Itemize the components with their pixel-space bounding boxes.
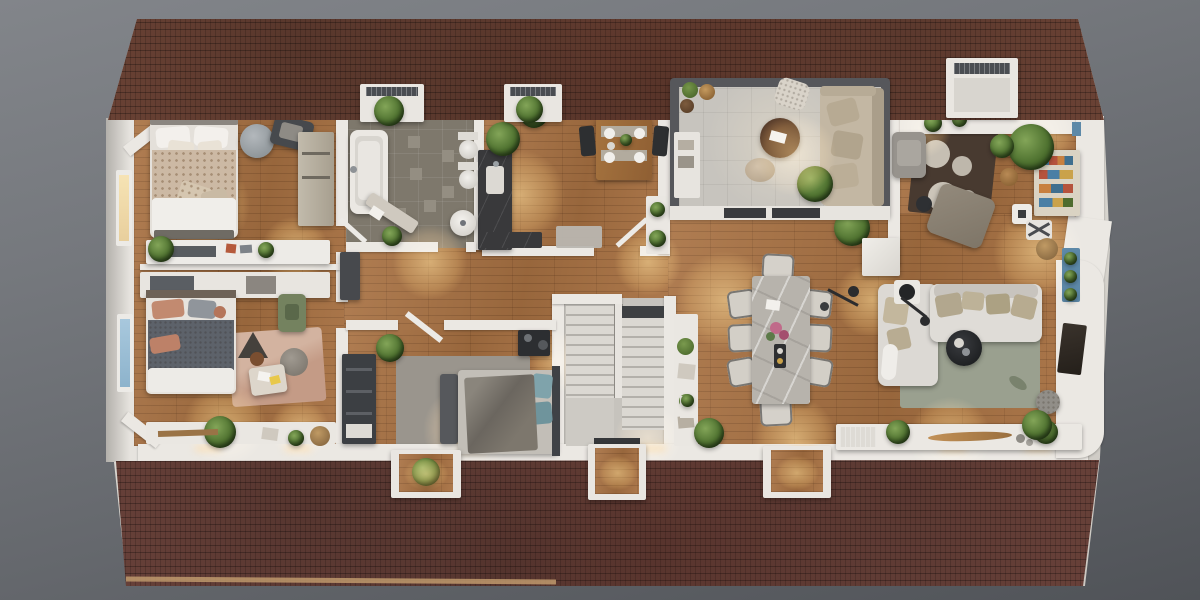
dining-flowers xyxy=(779,330,789,340)
coffee-table-plate xyxy=(962,348,970,356)
master-wardrobe-shelf xyxy=(302,152,330,155)
master-sideboard-plant xyxy=(258,242,274,258)
bathtub-faucet xyxy=(350,166,357,173)
sofa-cushion xyxy=(934,292,963,318)
master-window-glass xyxy=(119,175,129,241)
lounge-wood-stump xyxy=(680,99,694,113)
sideboard-crate xyxy=(840,427,876,447)
master-sideboard-plant xyxy=(148,236,174,262)
bedroom2-wardrobe-bin xyxy=(346,424,372,438)
coffee-table-plate xyxy=(954,338,964,348)
bath-plant xyxy=(382,226,402,246)
kids-duvet xyxy=(148,368,234,392)
kitchen-plant xyxy=(486,122,520,156)
stair-top-edge xyxy=(622,306,664,318)
wall-planter-plant xyxy=(1064,252,1077,265)
kitchen-sink xyxy=(486,166,504,194)
sofa-cushion xyxy=(961,291,985,311)
bedroom2-blanket xyxy=(464,374,538,454)
dining-tray-plate xyxy=(777,348,783,354)
media-books-row xyxy=(1039,184,1073,193)
kids-ledge-frame xyxy=(261,427,279,441)
sill-light xyxy=(285,446,311,451)
bedroom2-speaker xyxy=(538,340,548,350)
lounge-cabinet-frame xyxy=(678,156,694,168)
hall-planter-plant xyxy=(681,394,694,407)
bedroom2-wardrobe-shelf xyxy=(346,412,372,415)
lounge-threshold xyxy=(724,208,766,218)
stair-shelf-frame xyxy=(677,363,695,380)
hall-speaker xyxy=(916,196,932,212)
bath-tile-accent xyxy=(408,136,420,148)
kitchen-faucet xyxy=(493,161,499,167)
stair-flight-left xyxy=(566,306,614,400)
media-books-row xyxy=(1039,198,1073,207)
kitchen-mat xyxy=(556,226,602,248)
wall-stair-top xyxy=(552,294,622,304)
dining-tray-plate xyxy=(777,358,783,364)
lounge-wood-stump xyxy=(699,84,715,100)
hall-cube-table xyxy=(862,238,900,276)
kids-cabinet-inset xyxy=(246,276,276,294)
kitchen-chair xyxy=(579,125,597,156)
rug-media-circle xyxy=(952,156,972,176)
kids-pillow xyxy=(187,299,216,319)
toilet-tank xyxy=(458,132,478,140)
kitchen-plate xyxy=(604,128,615,139)
dormer-north-2-window xyxy=(510,87,556,96)
dormer-north-1-window xyxy=(366,87,418,96)
wall-planter-plant xyxy=(1064,270,1077,283)
sideboard-plant xyxy=(886,420,910,444)
dining-flowers xyxy=(766,332,775,341)
lounge-sofa-arm xyxy=(820,86,876,96)
bedroom2-wardrobe-shelf xyxy=(346,368,372,371)
kids-ledge-basket xyxy=(310,426,330,446)
kitchen-plate xyxy=(604,152,615,163)
master-wardrobe xyxy=(298,132,334,226)
kitchen-plate xyxy=(634,152,645,163)
stair-flight-right xyxy=(622,318,664,430)
bath-tile-accent xyxy=(442,186,454,198)
dining-placecard xyxy=(765,299,780,311)
floorplan-render xyxy=(0,0,1200,600)
media-books-row xyxy=(1039,170,1073,179)
media-plant-small xyxy=(990,134,1014,158)
media-stool-mark xyxy=(1018,210,1026,218)
dormer-north-1-plant xyxy=(374,96,404,126)
floor-lamp-head xyxy=(820,302,829,311)
dormer-north-2-plant xyxy=(516,96,543,123)
stair-shelf-moss xyxy=(677,338,694,355)
wall-master-bath-upper xyxy=(336,114,348,226)
lounge-cabinet-frame xyxy=(678,140,694,150)
dormer-south-2-glow xyxy=(592,450,644,496)
wall-bedroom2-top-a xyxy=(346,320,398,330)
kitchen-chair xyxy=(652,125,670,156)
sofa-cushion xyxy=(985,293,1010,315)
kids-window-glass xyxy=(120,319,130,387)
toilet-bowl xyxy=(459,140,478,159)
dormer-south-3-glow xyxy=(768,450,826,496)
kitchen-shelf-plant xyxy=(649,230,666,247)
media-blue-vase xyxy=(1072,122,1081,136)
bidet-tank xyxy=(458,162,478,170)
kids-bed-headboard xyxy=(146,290,236,298)
dining-table xyxy=(752,276,810,404)
master-duvet xyxy=(152,198,236,234)
bedroom2-wardrobe-shelf xyxy=(346,390,372,393)
sideboard-stone xyxy=(1026,439,1033,446)
master-sideboard-books xyxy=(226,244,237,254)
master-side-table xyxy=(240,124,274,158)
kitchen-table-plant xyxy=(620,134,632,146)
master-wardrobe-shelf xyxy=(302,176,330,179)
master-sideboard-books xyxy=(240,245,253,254)
media-armchair-cushion xyxy=(897,140,921,166)
bedroom2-bench xyxy=(440,374,458,444)
bedroom2-speaker xyxy=(524,334,532,342)
kitchen-plate xyxy=(634,128,645,139)
bedroom2-plant xyxy=(376,334,404,362)
dormer-south-1-glow xyxy=(396,452,456,496)
media-basket xyxy=(1036,238,1058,260)
lounge-sofa-back xyxy=(872,88,884,206)
hall-plant xyxy=(694,418,724,448)
dormer-north-3-floor xyxy=(954,78,1010,112)
kitchen-counter-l xyxy=(478,232,542,248)
dormer-north-3-window xyxy=(954,63,1010,74)
bath-tile-accent xyxy=(410,168,422,180)
bedroom2-headboard xyxy=(552,366,560,456)
kitchen-shelf-plant xyxy=(650,202,665,217)
floor-lamp-base xyxy=(848,286,859,297)
kids-chair-green-seat xyxy=(285,304,299,320)
kids-pillow xyxy=(151,298,185,319)
bath-tile-accent xyxy=(424,200,436,212)
kitchen-plate xyxy=(607,142,615,150)
bidet-bowl xyxy=(459,170,478,189)
living-lamp-head xyxy=(920,316,930,326)
hall-dark-cabinet xyxy=(340,252,360,300)
media-plant-large xyxy=(1008,124,1054,170)
kids-ledge-plant xyxy=(288,430,304,446)
living-corner-plant xyxy=(1022,410,1052,440)
media-wicker-pot xyxy=(1000,168,1018,186)
lounge-glow xyxy=(740,100,850,210)
kids-ball-toy xyxy=(250,352,264,366)
wall-planter-plant xyxy=(1064,288,1077,301)
sideboard-stone xyxy=(1016,434,1025,443)
bathtub-basin xyxy=(358,141,380,200)
bath-sink-drain xyxy=(460,220,466,226)
bath-tile-accent xyxy=(442,150,454,162)
lounge-moss-stool xyxy=(682,82,698,98)
